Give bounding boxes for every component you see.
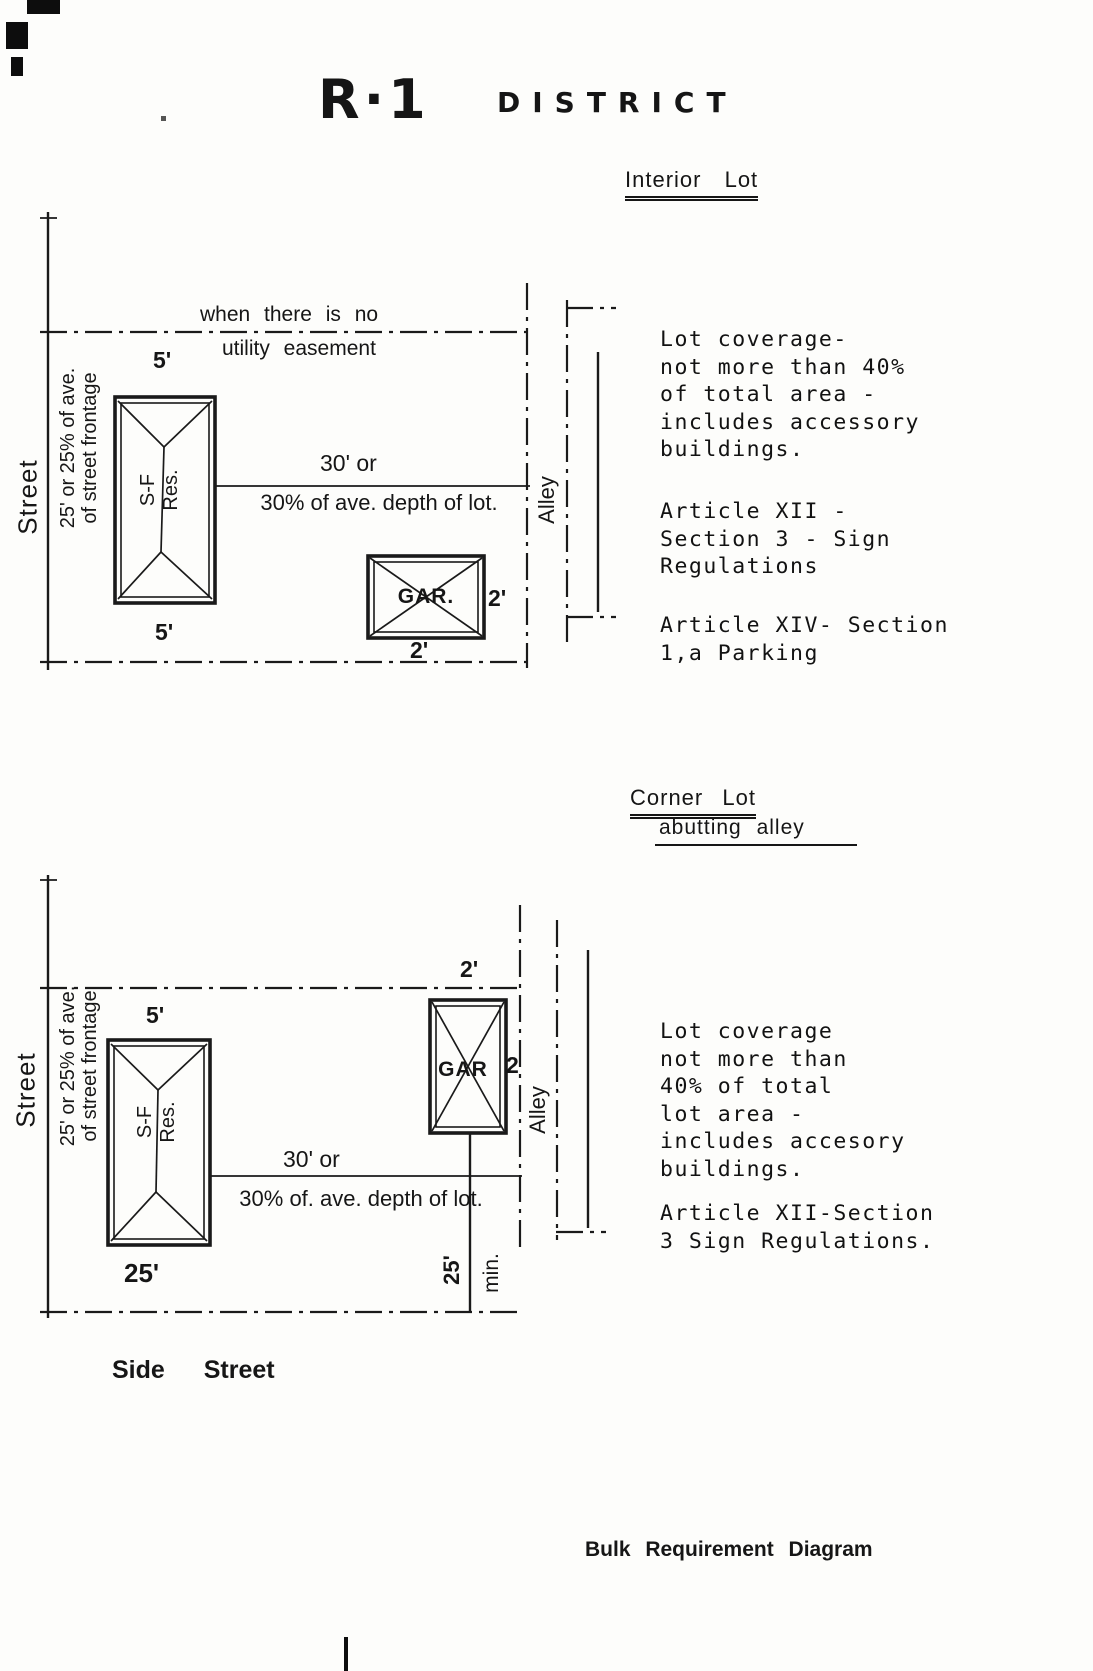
garage-rear-setback-interior: 2' xyxy=(410,637,428,664)
rear-min-value-corner: 25' xyxy=(439,1255,465,1285)
easement-note-line1: when there is no xyxy=(200,303,378,327)
bulk-requirement-caption: Bulk Requirement Diagram xyxy=(585,1538,873,1562)
rear-min-unit-corner: min. xyxy=(480,1253,504,1293)
street-label-corner: Street xyxy=(11,1052,42,1127)
rear-depth-line2-corner: 30% of. ave. depth of lot. xyxy=(212,1186,510,1212)
side-setback-bottom-interior: 5' xyxy=(155,619,173,646)
front-setback-corner: 25' xyxy=(124,1258,159,1289)
rear-depth-line1-corner: 30' or xyxy=(283,1146,340,1173)
interior-lot-heading: Interior Lot xyxy=(625,167,758,201)
alley-label-interior: Alley xyxy=(534,476,560,524)
rear-depth-line1-interior: 30' or xyxy=(320,450,377,477)
garage-label-corner: GAR xyxy=(438,1058,488,1082)
document-page: R·1 DISTRICT Interior Lot Corner Lot abu… xyxy=(0,0,1093,1671)
interior-sign-note: Article XII - Section 3 - Sign Regulatio… xyxy=(660,498,891,581)
interior-parking-note: Article XIV- Section 1,a Parking xyxy=(660,612,949,667)
garage-side-setback-interior: 2' xyxy=(488,585,506,612)
alley-label-corner: Alley xyxy=(525,1086,551,1134)
district-code-title: R·1 xyxy=(318,68,430,131)
frontage-setback-label-interior: 25' or 25% of ave. of street frontage xyxy=(57,368,101,529)
interior-coverage-note: Lot coverage- not more than 40% of total… xyxy=(660,326,920,464)
side-street-label: Side Street xyxy=(112,1356,275,1385)
corner-lot-subheading: abutting alley xyxy=(655,816,857,846)
frontage-setback-label-corner: 25' or 25% of ave. of street frontage xyxy=(57,986,101,1147)
garage-label-interior: GAR. xyxy=(398,585,455,609)
rear-depth-line2-interior: 30% of ave. depth of lot. xyxy=(228,490,530,516)
corner-coverage-note: Lot coverage not more than 40% of total … xyxy=(660,1018,906,1183)
side-setback-top-corner: 5' xyxy=(146,1002,164,1029)
side-setback-top-interior: 5' xyxy=(153,347,171,374)
corner-sign-note: Article XII-Section 3 Sign Regulations. xyxy=(660,1200,934,1255)
garage-side-setback-corner: 2 xyxy=(506,1052,519,1079)
house-label-corner: S-F Res. xyxy=(134,1101,180,1142)
easement-note-line2: utility easement xyxy=(222,337,376,361)
lot-diagram-lines xyxy=(0,0,1093,1671)
garage-top-setback-corner: 2' xyxy=(460,956,478,983)
district-word-title: DISTRICT xyxy=(497,86,738,119)
house-label-interior: S-F Res. xyxy=(137,469,183,510)
corner-lot-heading: Corner Lot xyxy=(630,785,756,819)
street-label-interior: Street xyxy=(13,459,44,534)
